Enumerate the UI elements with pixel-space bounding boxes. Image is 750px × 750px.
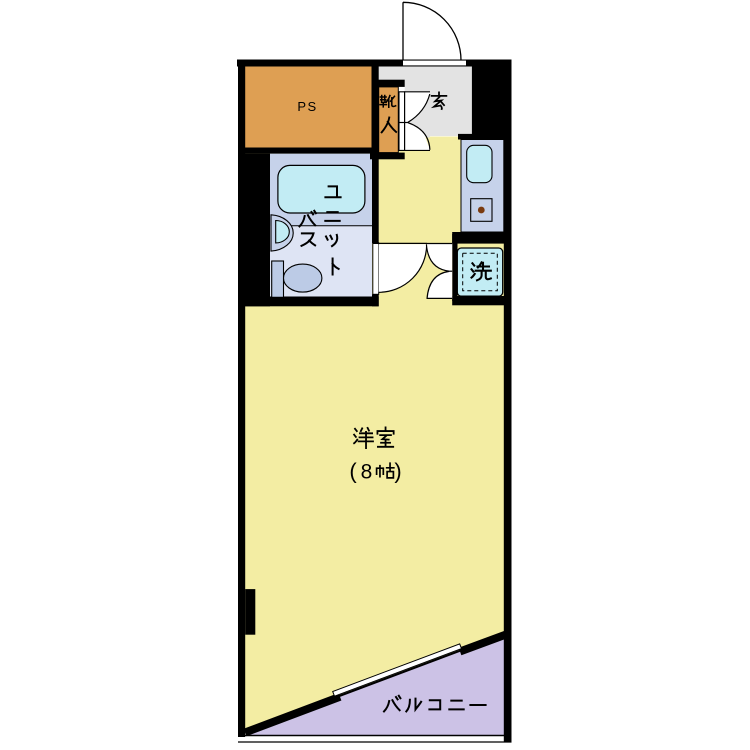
svg-text:): ): [394, 459, 401, 484]
svg-text:PS: PS: [297, 99, 317, 114]
svg-text:8: 8: [361, 461, 373, 484]
svg-text:(: (: [349, 459, 357, 484]
